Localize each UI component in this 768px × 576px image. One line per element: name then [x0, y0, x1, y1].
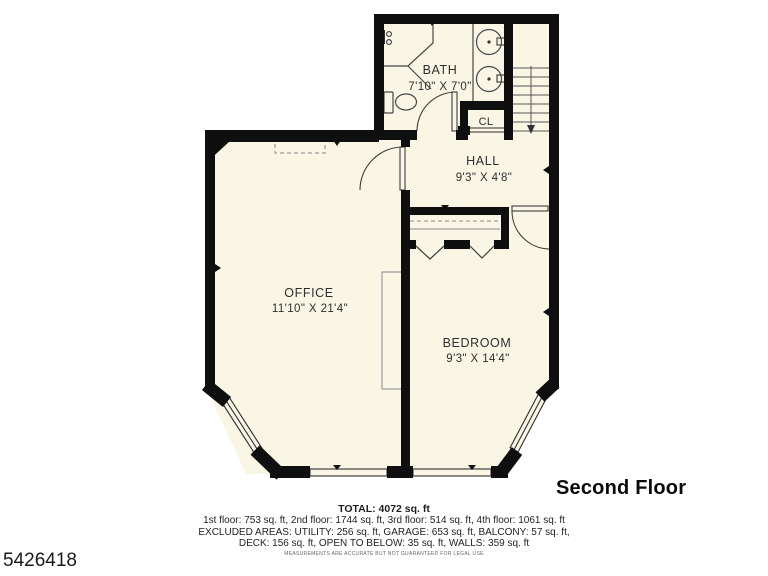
room-dims-office: 11'10" X 21'4" — [272, 303, 348, 315]
room-dims-bedroom: 9'3" X 14'4" — [446, 353, 509, 365]
wall — [401, 130, 410, 147]
wall — [444, 240, 470, 249]
sink-drain — [487, 77, 490, 80]
wall — [374, 14, 559, 24]
floors-area-text: 1st floor: 753 sq. ft, 2nd floor: 1744 s… — [0, 515, 768, 527]
wall — [401, 190, 410, 478]
wall — [401, 240, 416, 249]
wall — [458, 126, 470, 135]
wall — [549, 14, 559, 389]
room-label-cl: CL — [479, 116, 494, 128]
sink-drain — [487, 40, 490, 43]
office-bottom-window — [310, 469, 387, 476]
area-summary: TOTAL: 4072 sq. ft 1st floor: 753 sq. ft… — [0, 503, 768, 550]
room-label-bedroom: BEDROOM — [443, 336, 512, 350]
wall — [374, 14, 384, 140]
wall — [205, 130, 215, 392]
bath-door-leaf — [452, 92, 457, 131]
total-area-text: TOTAL: 4072 sq. ft — [0, 503, 768, 515]
wall — [494, 240, 509, 249]
excluded-areas-text-2: DECK: 156 sq. ft, OPEN TO BELOW: 35 sq. … — [0, 538, 768, 550]
office-door-leaf — [400, 147, 405, 190]
main-floor — [208, 135, 551, 474]
wall — [504, 19, 513, 140]
photo-id: 5426418 — [3, 550, 77, 572]
room-label-bath: BATH — [423, 63, 458, 77]
bedroom-bottom-window — [413, 469, 491, 476]
room-label-office: OFFICE — [284, 286, 333, 300]
wall — [401, 207, 508, 215]
disclaimer-text: MEASUREMENTS ARE ACCURATE BUT NOT GUARAN… — [0, 551, 768, 557]
room-dims-bath: 7'10" X 7'0" — [408, 81, 471, 93]
wall — [270, 466, 310, 478]
wall — [374, 130, 417, 140]
floor-plan-page: BATH 7'10" X 7'0" CL HALL 9'3" X 4'8" OF… — [0, 0, 768, 576]
floor-title: Second Floor — [556, 477, 686, 500]
room-dims-hall: 9'3" X 4'8" — [456, 172, 513, 184]
bedroom-door-leaf — [512, 206, 548, 211]
room-label-hall: HALL — [466, 154, 500, 168]
excluded-areas-text-1: EXCLUDED AREAS: UTILITY: 256 sq. ft, GAR… — [0, 527, 768, 539]
